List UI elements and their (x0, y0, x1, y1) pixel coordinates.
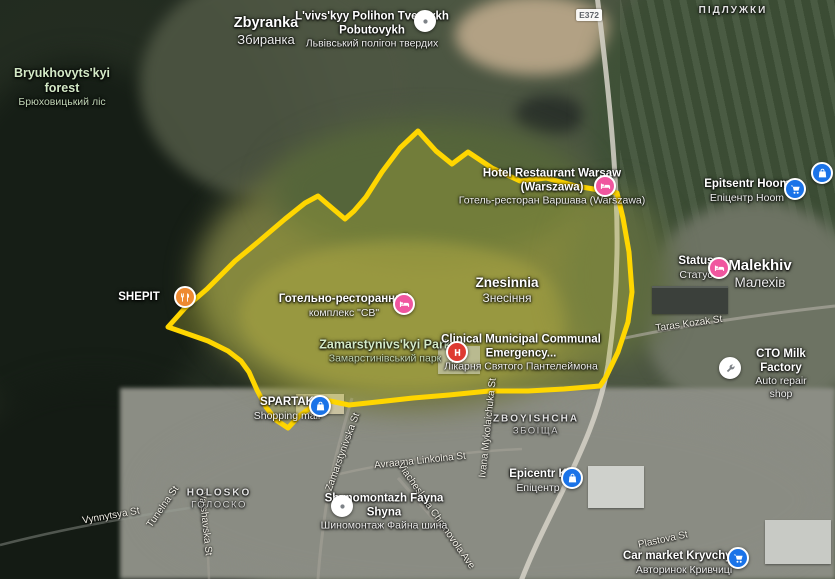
label-malekhiv[interactable]: Malekhiv Малехів (728, 257, 791, 291)
label-hotel-warsaw[interactable]: Hotel Restaurant Warsaw (Warszawa) Готел… (457, 167, 647, 207)
label-primary: ZBOYISHCHA (493, 414, 579, 426)
label-primary: Znesinnia (475, 275, 538, 291)
label-primary: Bryukhovyts'kyi forest (0, 66, 125, 96)
label-znesinnia[interactable]: Znesinnia Знесіння (475, 275, 538, 305)
label-cto-milk-factory[interactable]: CTO Milk Factory Auto repair shop (754, 348, 808, 400)
label-epitsentr-hoom[interactable]: Epitsentr Hoom Епіцентр Hoom (704, 178, 790, 204)
label-primary: Готельно-ресторанний (279, 293, 410, 307)
label-secondary: Епіцентр (509, 482, 567, 494)
car-market-marker[interactable] (727, 547, 749, 569)
label-epicentr-k[interactable]: Epicentr K Епіцентр (509, 468, 567, 494)
label-secondary: ГОЛОСКО (187, 499, 252, 510)
shepit-marker[interactable] (174, 286, 196, 308)
dot-icon (337, 501, 348, 512)
label-secondary: ЗБОЇЩА (493, 425, 579, 436)
wrench-icon (725, 363, 736, 374)
bed-icon (399, 299, 410, 310)
label-primary: Malekhiv (728, 257, 791, 275)
label-primary: L'vivs'kyy Polihon Tverdykh Pobutovykh (280, 10, 465, 37)
label-primary: CTO Milk Factory (754, 348, 808, 375)
label-secondary: Шиномонтаж Файна шина (317, 519, 452, 531)
shynomontazh-marker[interactable] (331, 495, 353, 517)
label-bryukhovytskyi-forest: Bryukhovyts'kyi forest Брюховицький ліс (0, 66, 125, 108)
bed-icon (714, 263, 725, 274)
label-secondary: Брюховицький ліс (0, 96, 125, 108)
spartak-marker[interactable] (309, 395, 331, 417)
label-primary: SHEPIT (118, 291, 160, 305)
route-badge-e372: E372 (576, 9, 602, 21)
label-secondary: Львівський полігон твердих (280, 37, 465, 49)
label-secondary: Малехів (728, 275, 791, 291)
shopping-bag-icon (315, 401, 326, 412)
hospital-icon (452, 347, 463, 358)
dot-icon (420, 16, 431, 27)
status-marker[interactable] (708, 257, 730, 279)
label-primary: Epicentr K (509, 468, 567, 482)
landfill-marker[interactable] (414, 10, 436, 32)
label-primary: HOLOSKO (187, 488, 252, 500)
label-secondary: Авторинок Кривчиці (623, 564, 745, 576)
hospital-marker[interactable] (446, 341, 468, 363)
bed-icon (600, 181, 611, 192)
cto-milk-factory-marker[interactable] (719, 357, 741, 379)
label-primary: Hotel Restaurant Warsaw (Warszawa) (457, 167, 647, 194)
label-sv-complex[interactable]: Готельно-ресторанний комплекс "СВ" (279, 293, 410, 319)
label-secondary: Епіцентр Hoom (704, 192, 790, 204)
shopping-bag-icon (567, 473, 578, 484)
label-holosko: HOLOSKO ГОЛОСКО (187, 488, 252, 511)
label-secondary: Auto repair shop (754, 375, 808, 400)
label-pidluzhky: ПІДЛУЖКИ (699, 5, 768, 17)
restaurant-icon (180, 292, 191, 303)
shop-marker-topright[interactable] (811, 162, 833, 184)
label-zboyishcha: ZBOYISHCHA ЗБОЇЩА (493, 414, 579, 437)
epitsentr-hoom-marker[interactable] (784, 178, 806, 200)
label-primary: ПІДЛУЖКИ (699, 5, 768, 17)
shopping-cart-icon (733, 553, 744, 564)
label-landfill[interactable]: L'vivs'kyy Polihon Tverdykh Pobutovykh Л… (280, 10, 465, 50)
epicentr-k-marker[interactable] (561, 467, 583, 489)
label-primary: Epitsentr Hoom (704, 178, 790, 192)
sv-complex-marker[interactable] (393, 293, 415, 315)
label-secondary: Знесіння (475, 291, 538, 305)
hotel-warsaw-marker[interactable] (594, 175, 616, 197)
shopping-bag-icon (817, 168, 828, 179)
label-secondary: комплекс "СВ" (279, 307, 410, 319)
satellite-map[interactable]: Zbyranka Збиранка L'vivs'kyy Polihon Tve… (0, 0, 835, 579)
label-secondary: Готель-ресторан Варшава (Warszawa) (457, 194, 647, 206)
shopping-cart-icon (790, 184, 801, 195)
label-shepit[interactable]: SHEPIT (118, 291, 160, 305)
